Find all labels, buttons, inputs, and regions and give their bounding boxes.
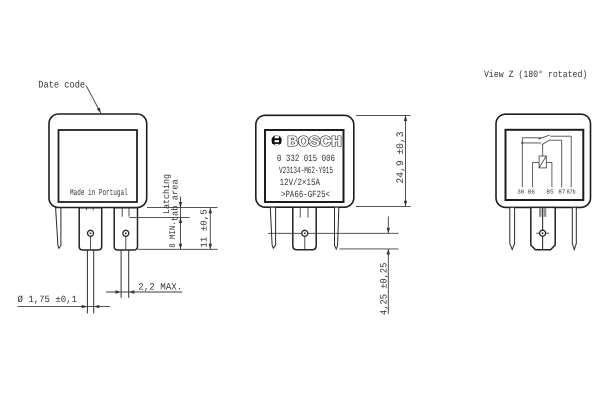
svg-text:Made in Portugal: Made in Portugal <box>70 188 128 198</box>
svg-text:30: 30 <box>517 189 525 196</box>
svg-text:0 332 015 006: 0 332 015 006 <box>277 153 335 164</box>
svg-text:87b: 87b <box>567 189 576 196</box>
svg-text:Ø 1,75 ±0,1: Ø 1,75 ±0,1 <box>18 294 78 305</box>
svg-text:11 ±0,5: 11 ±0,5 <box>199 209 209 248</box>
svg-text:View Z (180° rotated): View Z (180° rotated) <box>484 69 587 80</box>
svg-text:24,9 ±0,3: 24,9 ±0,3 <box>396 132 407 184</box>
svg-text:tab area: tab area <box>171 179 181 222</box>
svg-text:87: 87 <box>558 189 566 196</box>
svg-text:2,2 MAX.: 2,2 MAX. <box>138 281 182 292</box>
svg-text:86: 86 <box>528 189 536 196</box>
svg-text:12V/2×15A: 12V/2×15A <box>280 177 321 188</box>
svg-text:V23134-M62-Y915: V23134-M62-Y915 <box>279 165 333 176</box>
svg-text:>PA66-GF25<: >PA66-GF25< <box>281 189 330 200</box>
svg-text:Date code: Date code <box>38 80 85 92</box>
svg-text:85: 85 <box>546 189 554 196</box>
svg-text:4,25 ±0,25: 4,25 ±0,25 <box>379 262 390 315</box>
svg-text:BOSCH: BOSCH <box>287 134 342 151</box>
svg-text:8 MIN.: 8 MIN. <box>168 221 178 248</box>
